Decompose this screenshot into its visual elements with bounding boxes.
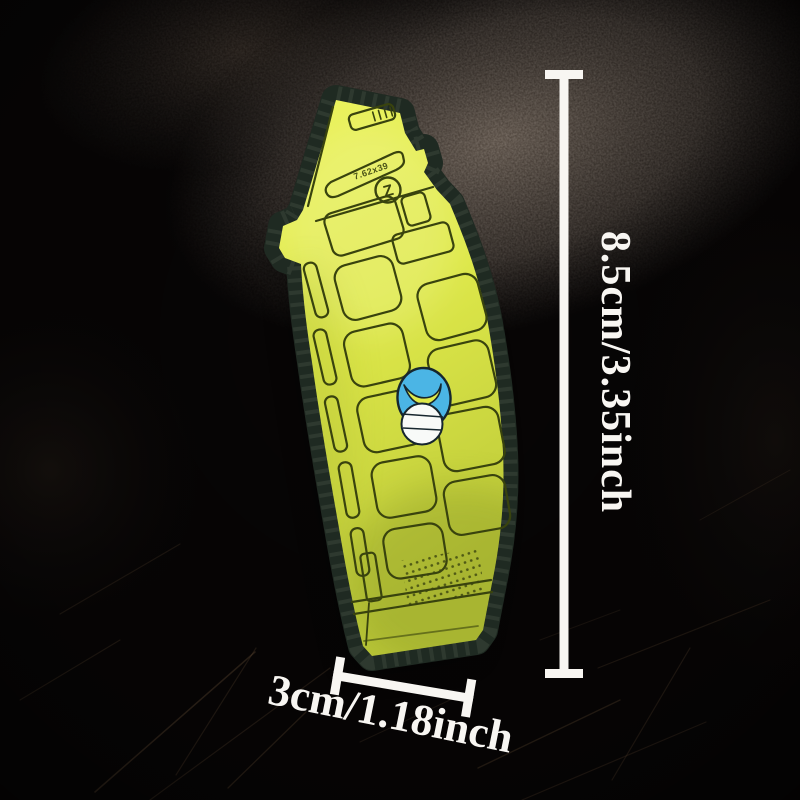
height-measure-cap-bottom bbox=[545, 669, 583, 678]
product-photo: 7.62x39 Z 8.5cm/3.35inch 3cm/1.18inch bbox=[0, 0, 800, 800]
height-measure-line bbox=[560, 70, 569, 678]
mascot-face-mask bbox=[402, 404, 443, 445]
height-label: 8.5cm/3.35inch bbox=[592, 231, 638, 513]
photo-canvas: 7.62x39 Z 8.5cm/3.35inch 3cm/1.18inch bbox=[0, 0, 800, 800]
height-measure-cap-top bbox=[545, 70, 583, 79]
